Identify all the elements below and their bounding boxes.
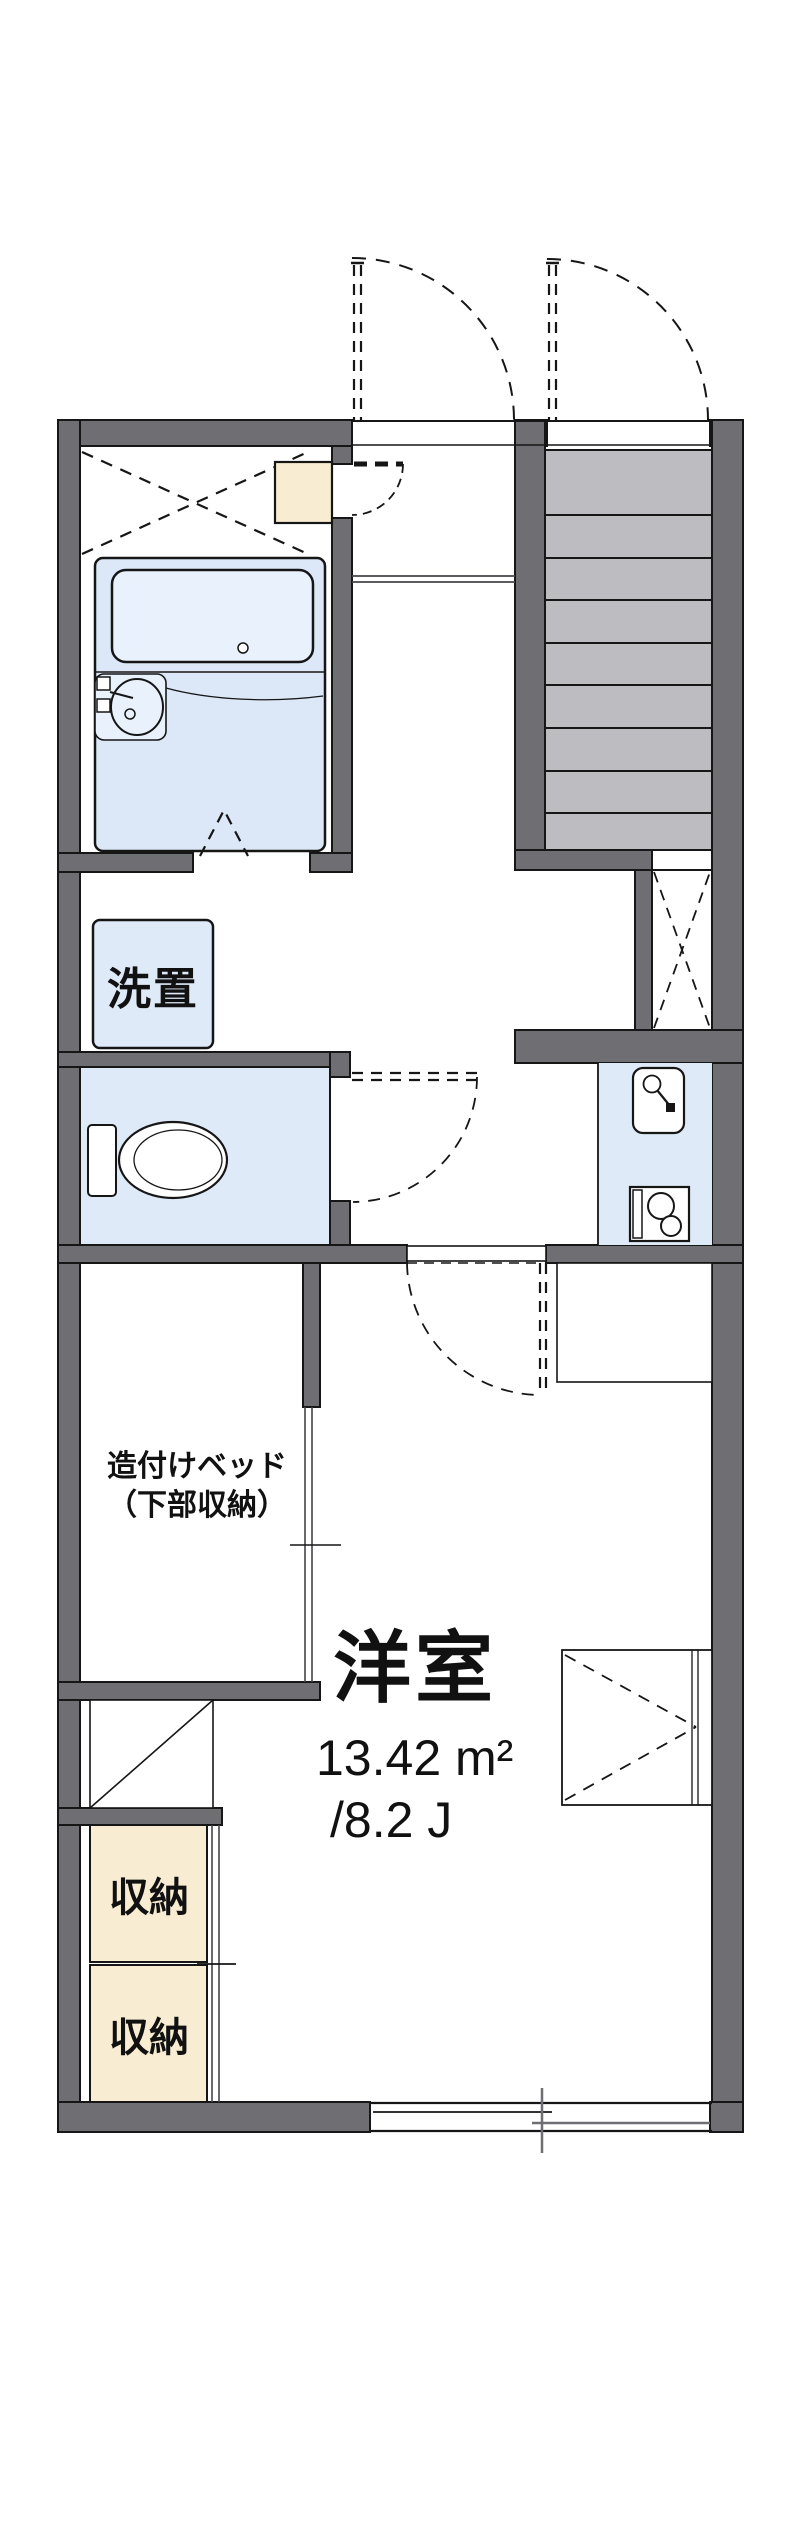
built-in-bed-label-line1: 造付けベッド [107, 1441, 287, 1485]
wall-toilet-right-lower [330, 1201, 350, 1247]
wall-bath-entry-upper [332, 446, 352, 464]
bathroom-door-swing-icon [352, 464, 403, 515]
room-door-swing-icon [407, 1263, 540, 1395]
toilet-bowl-icon [119, 1122, 227, 1198]
wall-bottom-right [710, 2102, 743, 2132]
built-in-bed-label-line2: （下部収納） [107, 1480, 287, 1524]
bathtub-drain-icon [238, 643, 248, 653]
wall-hall-bottom [58, 1245, 407, 1263]
wall-right [712, 420, 743, 2132]
bathroom [82, 452, 403, 856]
room-door [407, 1246, 546, 1395]
wall-stairs-left [515, 420, 545, 870]
washer-space-label: 洗置 [107, 953, 199, 1017]
entrance-door-left-swing-icon [351, 258, 514, 420]
wall-kitchen-bottom [546, 1245, 743, 1263]
storage-upper-label: 収納 [109, 1865, 189, 1923]
wall-bed-bottom [58, 1682, 320, 1700]
side-window-icon [562, 1650, 712, 1805]
wall-shaft-left [635, 870, 652, 1030]
wall-toilet-right-upper [330, 1052, 350, 1077]
wall-bottom-left [58, 2102, 370, 2132]
refrigerator-space [557, 1263, 712, 1382]
wash-basin [95, 674, 166, 740]
western-room-area-tatami: /8.2 J [330, 1791, 452, 1849]
toilet-room [80, 1067, 330, 1245]
western-room-label: 洋室 [333, 1606, 497, 1718]
faucet-knob-icon [97, 677, 110, 690]
bottom-window-icon [370, 2088, 712, 2153]
faucet-handle-icon [666, 1103, 675, 1112]
shaft-box [652, 870, 712, 1030]
wall-bath-bottom-right [310, 853, 352, 872]
faucet-knob-icon [97, 699, 110, 712]
entry-step-line [352, 576, 515, 582]
storage-lower-label: 収納 [109, 2005, 189, 2063]
stove-icon [630, 1187, 689, 1241]
wall-toilet-top [58, 1052, 350, 1067]
kitchen [598, 1063, 712, 1245]
wall-storage-top [58, 1808, 222, 1825]
stairs [545, 450, 712, 850]
floor-plan-drawing [0, 0, 800, 2541]
floor-plan: 洗置 造付けベッド （下部収納） 洋室 13.42 m² /8.2 J 収納 収… [0, 0, 800, 2541]
corner-diagonal-box [90, 1700, 213, 1808]
wall-stairs-bottom [515, 850, 652, 870]
wall-bath-bottom-left [58, 853, 193, 872]
toilet-door-swing-icon [352, 1073, 477, 1202]
wall-bath-entry-lower [332, 518, 352, 872]
wall-kitchen-top [515, 1030, 743, 1063]
shoe-cabinet [275, 462, 332, 523]
bathtub [112, 570, 313, 662]
western-room-area-sqm: 13.42 m² [316, 1729, 513, 1787]
wall-bed-divider [303, 1263, 320, 1407]
entrance-door-right-swing-icon [546, 259, 708, 420]
wall-top-left [58, 420, 352, 446]
wall-left [58, 420, 80, 2132]
toilet-tank-icon [88, 1125, 116, 1196]
